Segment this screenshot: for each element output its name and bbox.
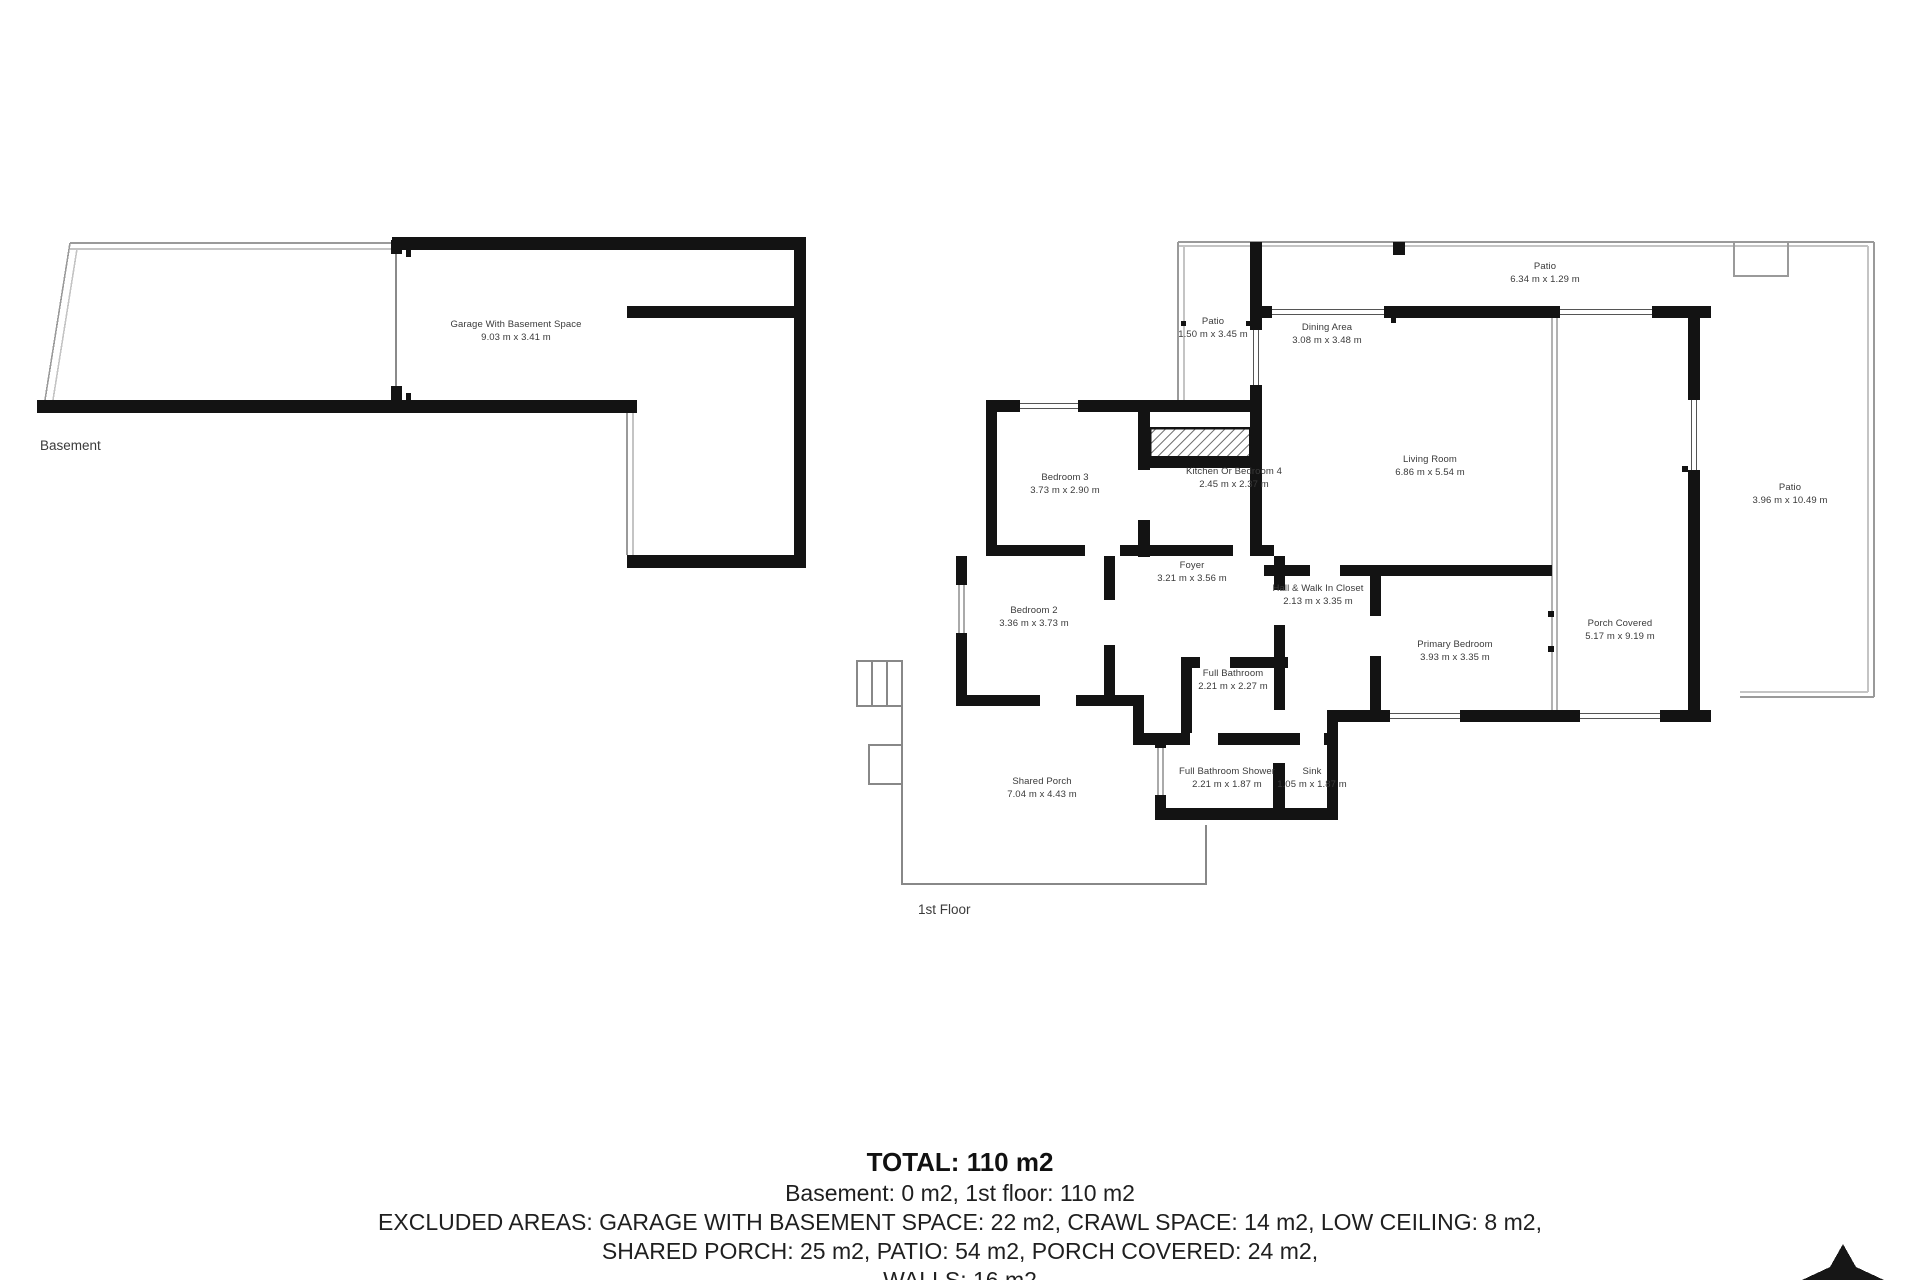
basement-thin-boundaries [45,243,633,555]
basement-walls [37,237,806,568]
room-label-garage-with-basement-space: Garage With Basement Space9.03 m x 3.41 … [451,318,582,344]
room-label-kitchen-or-bedroom-4: Kitchen Or Bedroom 42.45 m x 2.37 m [1186,465,1282,491]
room-label-patio-right: Patio3.96 m x 10.49 m [1753,481,1828,507]
room-label-hall-walk-in-closet: Hall & Walk In Closet2.13 m x 3.35 m [1273,582,1364,608]
room-label-bedroom-3: Bedroom 33.73 m x 2.90 m [1030,471,1100,497]
room-label-primary-bedroom: Primary Bedroom3.93 m x 3.35 m [1417,638,1492,664]
room-label-full-bathroom: Full Bathroom2.21 m x 2.27 m [1198,667,1268,693]
room-label-foyer: Foyer3.21 m x 3.56 m [1157,559,1227,585]
first-floor-caption: 1st Floor [918,902,971,917]
summary-line-2: Basement: 0 m2, 1st floor: 110 m2 [0,1179,1920,1208]
summary-line-5: WALLS: 16 m2 [0,1266,1920,1280]
room-label-shared-porch: Shared Porch7.04 m x 4.43 m [1007,775,1077,801]
summary-line-3: EXCLUDED AREAS: GARAGE WITH BASEMENT SPA… [0,1208,1920,1237]
summary-line-4: SHARED PORCH: 25 m2, PATIO: 54 m2, PORCH… [0,1237,1920,1266]
floorplan-page: Garage With Basement Space9.03 m x 3.41 … [0,0,1920,1280]
room-label-sink: Sink1.05 m x 1.87 m [1277,765,1347,791]
summary-total: TOTAL: 110 m2 [0,1146,1920,1179]
room-label-full-bathroom-shower: Full Bathroom Shower2.21 m x 1.87 m [1179,765,1275,791]
room-label-living-room: Living Room6.86 m x 5.54 m [1395,453,1465,479]
hatched-counter [1150,428,1250,457]
room-label-dining-area: Dining Area3.08 m x 3.48 m [1292,321,1362,347]
room-label-patio-small: Patio1.50 m x 3.45 m [1178,315,1248,341]
shared-porch-outline [857,661,1206,884]
room-label-patio-top: Patio6.34 m x 1.29 m [1510,260,1580,286]
room-label-porch-covered: Porch Covered5.17 m x 9.19 m [1585,617,1655,643]
area-summary: TOTAL: 110 m2 Basement: 0 m2, 1st floor:… [0,1146,1920,1280]
basement-caption: Basement [40,438,101,453]
room-label-bedroom-2: Bedroom 23.36 m x 3.73 m [999,604,1069,630]
